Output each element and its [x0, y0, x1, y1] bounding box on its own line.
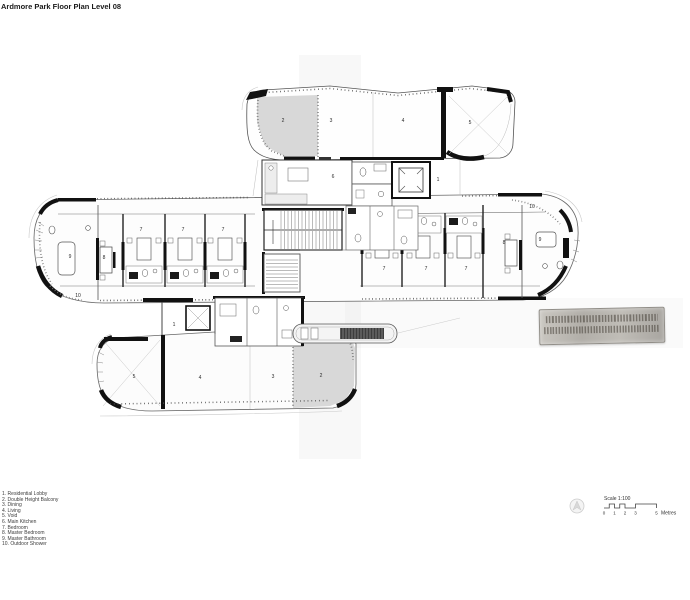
- scale-tick: 5: [655, 511, 658, 516]
- scale-bar: [604, 504, 657, 508]
- bathtub-icon: [58, 242, 75, 275]
- bed-icon: [457, 236, 471, 258]
- sink-icon: [86, 226, 91, 231]
- stamp-text-row: [544, 325, 660, 334]
- lift-shaft-top: [392, 162, 430, 198]
- toilet-icon: [401, 236, 407, 244]
- lap-pool: [293, 318, 460, 343]
- void-wall: [161, 335, 165, 409]
- ensuite-bathrooms: [126, 266, 243, 283]
- room-label: 10: [529, 204, 535, 210]
- room-label: 5: [469, 120, 472, 126]
- bed-icon: [218, 238, 232, 260]
- vanity-icon: [398, 210, 412, 218]
- room-label: 6: [332, 174, 335, 180]
- sink-icon: [543, 264, 548, 269]
- toilet-icon: [360, 168, 366, 176]
- room-label: 8: [103, 255, 106, 261]
- scale-tick: 0: [603, 511, 606, 516]
- scale-block: Scale 1:100 0 1 2 3 5 Metres: [570, 496, 677, 517]
- room-label: 7: [425, 266, 428, 272]
- room-label: 8: [503, 240, 506, 246]
- stair-treads: [266, 258, 298, 290]
- scale-tick: 2: [624, 511, 627, 516]
- scale-unit: Metres: [661, 511, 677, 517]
- shower-icon: [282, 330, 292, 338]
- bedroom-furniture: [127, 238, 242, 260]
- floor-plan-drawing: 2 3 4 5 6 1 9 8 7 7 7 10 7 7 7 8 9 10 1 …: [0, 0, 690, 600]
- vanity-icon: [374, 164, 386, 171]
- kitchen-counter-icon: [265, 194, 307, 204]
- stair-treads: [280, 211, 340, 229]
- toilet-icon: [355, 234, 361, 242]
- room-label: 7: [465, 266, 468, 272]
- bed-icon: [137, 238, 151, 260]
- scale-tick: 1: [613, 511, 616, 516]
- room-label: 9: [69, 254, 72, 260]
- sink-icon: [378, 191, 384, 197]
- room-label: 2: [320, 373, 323, 379]
- kitchen-island-icon: [288, 168, 308, 181]
- sink-icon: [378, 212, 383, 217]
- shower-icon: [356, 190, 364, 198]
- slab-edge-line: [100, 411, 342, 416]
- scale-title: Scale 1:100: [604, 496, 631, 502]
- toilet-icon: [49, 226, 55, 234]
- room-label: 1: [173, 322, 176, 328]
- bed-icon: [505, 240, 517, 266]
- toilet-icon: [253, 306, 259, 314]
- toilet-icon: [557, 261, 563, 269]
- room-label: 4: [402, 118, 405, 124]
- room-label: 7: [182, 227, 185, 233]
- core-bathrooms-upper: [352, 162, 392, 206]
- stair-treads: [280, 231, 340, 249]
- room-label: 4: [199, 375, 202, 381]
- secondary-staircase: [262, 252, 300, 294]
- legend-item: 10. Outdoor Shower: [2, 542, 58, 548]
- legend: 1. Residential Lobby 2. Double Height Ba…: [2, 492, 58, 548]
- bed-icon: [178, 238, 192, 260]
- room-label: 3: [330, 118, 333, 124]
- room-label: 7: [222, 227, 225, 233]
- room-label: 1: [437, 177, 440, 183]
- embossed-architect-stamp: [539, 307, 666, 346]
- context-line: [398, 318, 460, 333]
- room-label: 3: [272, 374, 275, 380]
- floor-plan-page: Ardmore Park Floor Plan Level 08: [0, 0, 690, 600]
- room-label: 7: [383, 266, 386, 272]
- cabinet-icon: [220, 304, 236, 316]
- room-label: 5: [133, 374, 136, 380]
- sink-icon: [284, 306, 289, 311]
- room-label: 7: [140, 227, 143, 233]
- stamp-text-row: [546, 314, 658, 323]
- context-line: [253, 160, 258, 196]
- main-staircase: [262, 208, 344, 250]
- sink-icon: [269, 166, 273, 170]
- scale-tick: 3: [634, 511, 637, 516]
- room-label: 10: [75, 293, 81, 299]
- room-label: 9: [539, 237, 542, 243]
- room-label: 2: [282, 118, 285, 124]
